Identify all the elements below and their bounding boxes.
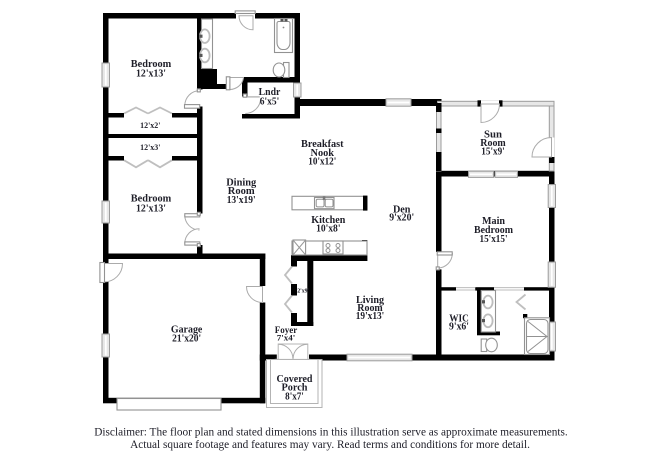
svg-text:8'x7': 8'x7' [285,391,304,402]
svg-text:12'x13': 12'x13' [136,203,166,214]
svg-text:9'x6': 9'x6' [449,322,469,333]
svg-text:12'x13': 12'x13' [136,68,166,79]
svg-text:13'x19': 13'x19' [227,195,256,206]
svg-text:Disclaimer: The floor plan and: Disclaimer: The floor plan and stated di… [94,427,568,439]
svg-text:Actual square footage and feat: Actual square footage and features may v… [130,439,530,451]
svg-text:21'x20': 21'x20' [172,333,201,344]
svg-text:19'x13': 19'x13' [356,311,385,322]
svg-text:12'x2': 12'x2' [140,121,160,130]
svg-text:10'x12': 10'x12' [308,157,336,168]
svg-text:9'x20': 9'x20' [389,213,414,224]
svg-text:2'x9': 2'x9' [297,288,309,295]
svg-text:15'x15': 15'x15' [480,234,508,245]
svg-text:10'x8': 10'x8' [316,224,341,235]
svg-text:12'x3': 12'x3' [140,143,160,152]
svg-text:15'x9': 15'x9' [481,147,505,158]
svg-text:7'x4': 7'x4' [277,333,296,342]
svg-text:6'x5': 6'x5' [260,97,280,108]
